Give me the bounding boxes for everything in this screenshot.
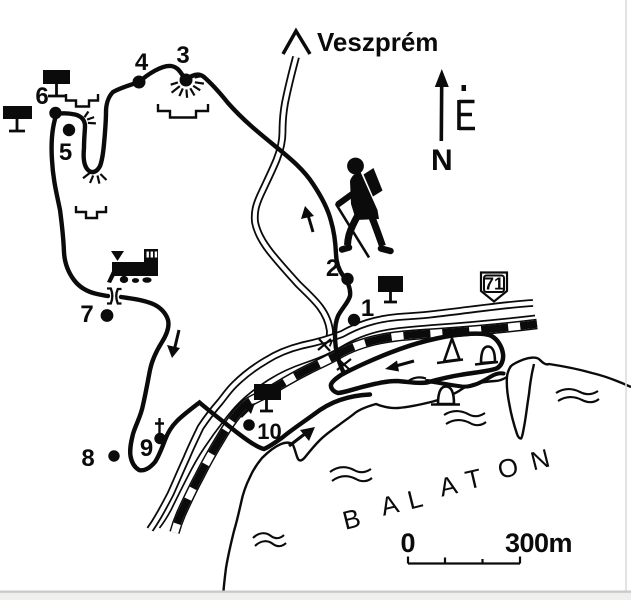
svg-text:4: 4	[135, 49, 149, 76]
svg-text:8: 8	[81, 445, 94, 472]
svg-text:300m: 300m	[505, 528, 572, 558]
svg-text:10: 10	[257, 419, 281, 444]
svg-text:7: 7	[80, 301, 93, 328]
svg-text:Veszprém: Veszprém	[317, 27, 438, 57]
svg-text:71: 71	[484, 274, 504, 294]
svg-text:9: 9	[140, 435, 153, 462]
svg-text:N: N	[431, 144, 453, 177]
svg-text:2: 2	[326, 255, 339, 282]
svg-text:0: 0	[400, 528, 415, 558]
svg-text:1: 1	[361, 295, 374, 322]
svg-text:6: 6	[35, 83, 48, 110]
svg-text:3: 3	[176, 42, 189, 69]
svg-text:5: 5	[59, 139, 72, 166]
